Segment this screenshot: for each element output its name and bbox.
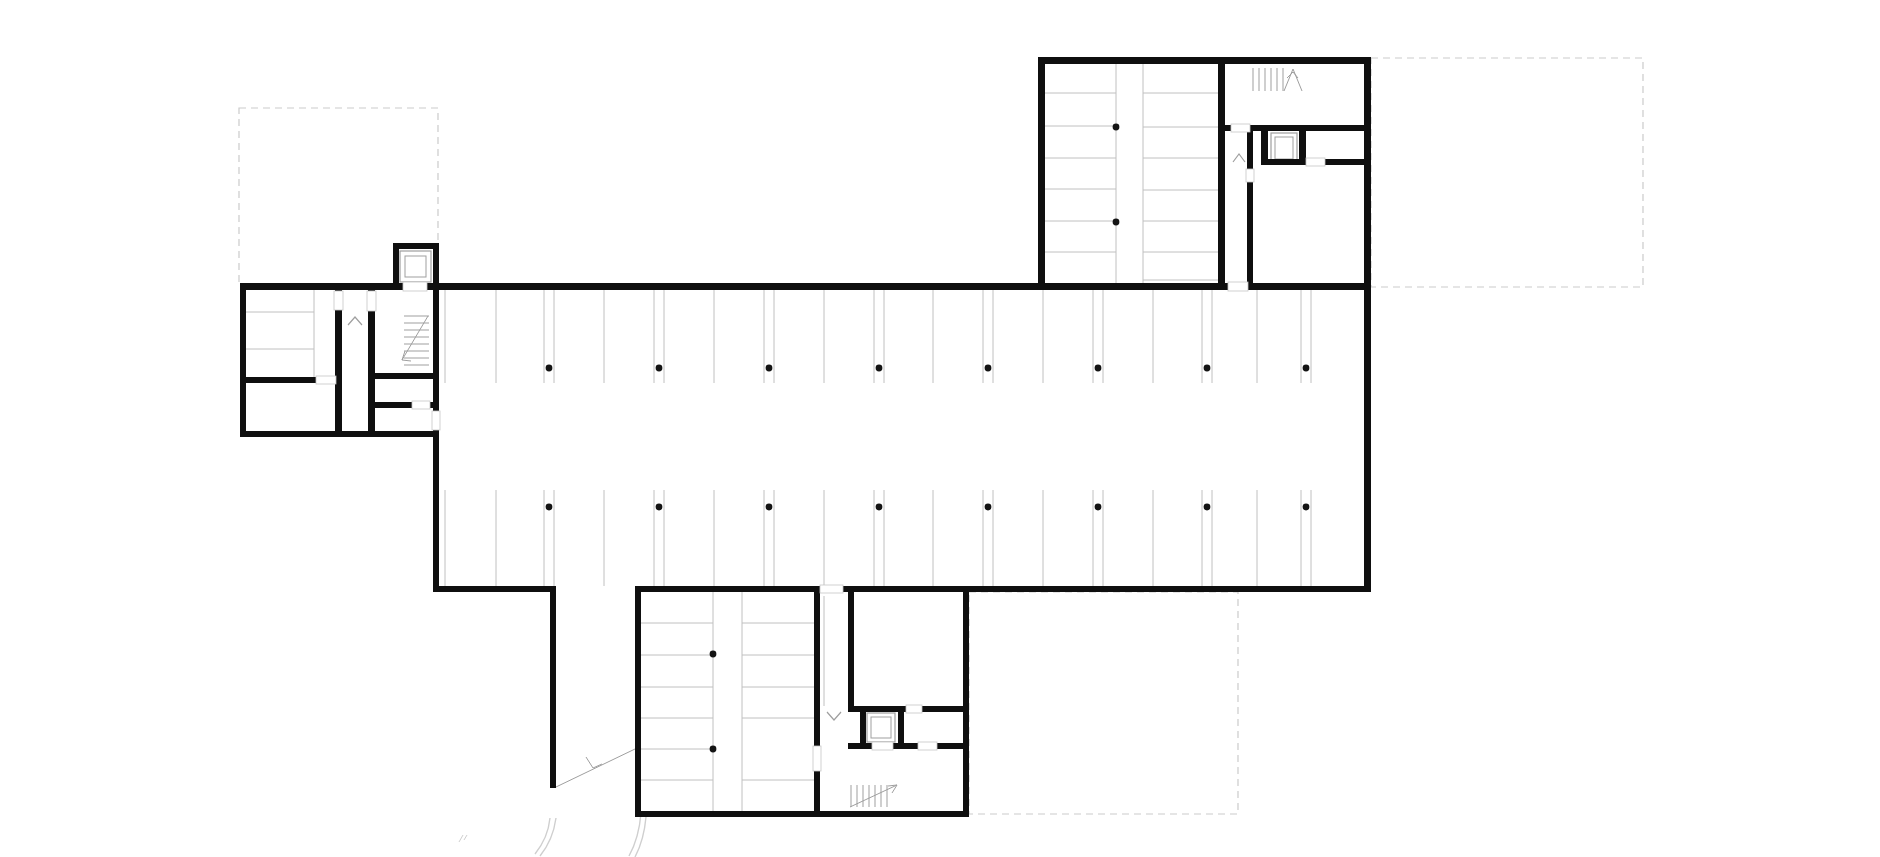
column-dot bbox=[710, 651, 717, 658]
wall-segment bbox=[635, 586, 820, 592]
wall-segment bbox=[550, 586, 556, 788]
wall-segment bbox=[433, 586, 556, 592]
door-opening bbox=[813, 746, 821, 771]
column-dot bbox=[1204, 504, 1211, 511]
elevator-car bbox=[871, 717, 891, 738]
wall-segment bbox=[1325, 159, 1364, 165]
door-opening bbox=[906, 705, 922, 713]
wall-segment bbox=[848, 592, 854, 712]
wall-segment bbox=[393, 243, 439, 249]
wall-segment bbox=[848, 743, 969, 749]
floor-plan-page bbox=[0, 0, 1880, 857]
wall-segment bbox=[963, 592, 969, 817]
column-dot bbox=[1095, 504, 1102, 511]
wall-segment bbox=[1038, 57, 1045, 290]
door-swing-chevron bbox=[348, 317, 362, 325]
column-dot bbox=[546, 504, 553, 511]
stair-direction-line bbox=[402, 360, 411, 361]
wall-segment bbox=[814, 592, 820, 817]
stair-direction-line bbox=[1284, 69, 1293, 91]
wall-segment bbox=[433, 243, 439, 289]
wall-segment bbox=[635, 811, 969, 817]
column-dot bbox=[546, 365, 553, 372]
ramp-direction-arrow bbox=[556, 749, 635, 787]
door-opening bbox=[1246, 169, 1254, 182]
wall-segment bbox=[393, 243, 399, 289]
column-dot bbox=[1204, 365, 1211, 372]
elevator-car bbox=[405, 256, 426, 277]
wall-segment bbox=[1038, 57, 1371, 64]
column-dot bbox=[1303, 365, 1310, 372]
driveway-curve bbox=[540, 818, 556, 856]
wall-segment bbox=[635, 586, 641, 817]
door-swing-chevron bbox=[1233, 154, 1245, 162]
wall-segment bbox=[843, 586, 1371, 592]
door-opening bbox=[316, 376, 336, 384]
wall-segment bbox=[1364, 290, 1371, 592]
wall-segment bbox=[368, 373, 439, 379]
column-dot bbox=[656, 504, 663, 511]
door-opening bbox=[334, 291, 343, 310]
column-dot bbox=[876, 504, 883, 511]
column-dot bbox=[1095, 365, 1102, 372]
dashed-boundary-outline bbox=[969, 592, 1238, 814]
dashed-boundary-outline bbox=[1371, 58, 1643, 287]
stair-direction-line bbox=[1293, 69, 1302, 91]
door-opening bbox=[820, 585, 843, 593]
floor-plan-canvas bbox=[0, 0, 1880, 857]
column-dot bbox=[985, 504, 992, 511]
column-dot bbox=[1113, 124, 1120, 131]
column-dot bbox=[766, 365, 773, 372]
door-opening bbox=[1228, 282, 1248, 291]
door-swing-chevron bbox=[827, 712, 841, 720]
column-dot bbox=[1113, 219, 1120, 226]
door-opening bbox=[432, 411, 440, 430]
stair-direction-line bbox=[1293, 72, 1298, 78]
column-dot bbox=[766, 504, 773, 511]
wall-segment bbox=[1225, 125, 1231, 131]
wall-segment bbox=[433, 283, 439, 592]
wall-segment bbox=[240, 283, 246, 437]
dashed-boundary-outline bbox=[239, 108, 438, 284]
column-dot bbox=[876, 365, 883, 372]
door-opening bbox=[1231, 124, 1250, 132]
column-dot bbox=[985, 365, 992, 372]
pavement-mark bbox=[464, 835, 467, 840]
wall-segment bbox=[1364, 57, 1371, 290]
door-opening bbox=[1306, 158, 1325, 166]
column-dot bbox=[1303, 504, 1310, 511]
door-opening bbox=[918, 742, 937, 750]
pavement-mark bbox=[459, 835, 463, 842]
column-dot bbox=[710, 746, 717, 753]
column-dot bbox=[656, 365, 663, 372]
wall-segment bbox=[1218, 63, 1225, 283]
ramp-arrow-barb bbox=[586, 757, 593, 768]
elevator-car bbox=[1275, 137, 1293, 159]
wall-segment bbox=[1247, 182, 1253, 283]
driveway-curve bbox=[535, 818, 550, 854]
wall-segment bbox=[1261, 159, 1306, 165]
door-opening bbox=[412, 401, 430, 409]
door-opening bbox=[872, 742, 893, 750]
door-opening bbox=[367, 291, 376, 311]
wall-segment bbox=[1247, 131, 1253, 169]
wall-segment bbox=[1250, 125, 1371, 131]
door-opening bbox=[403, 282, 427, 291]
